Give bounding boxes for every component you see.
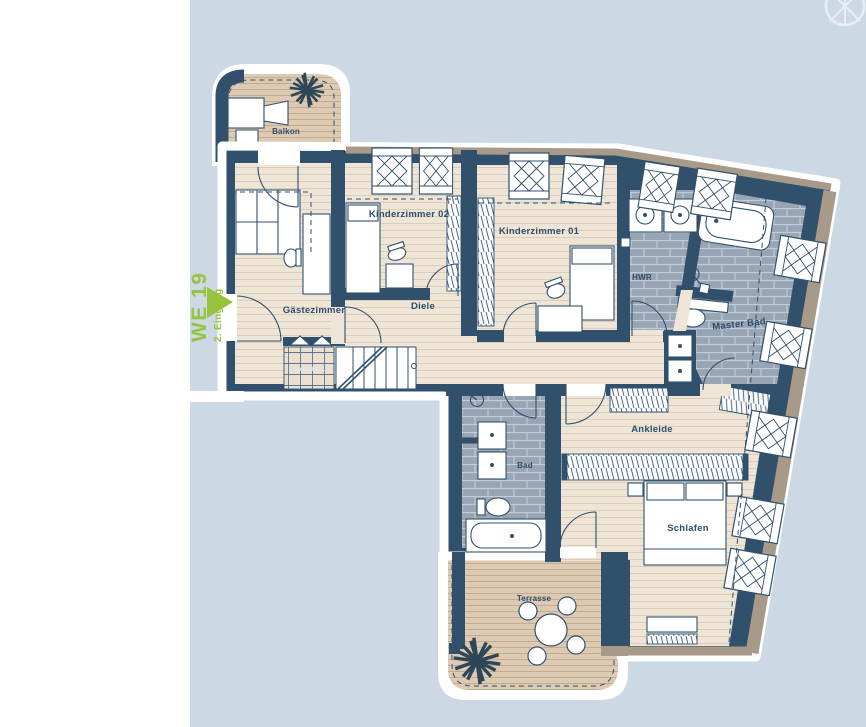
staircase	[336, 347, 417, 389]
window-icon	[372, 148, 412, 194]
room-label-schlafen: Schlafen	[667, 523, 709, 534]
entrance-walkway	[190, 391, 244, 402]
page-left-margin	[0, 0, 190, 727]
window-icon	[638, 162, 680, 213]
terrace-chair	[567, 636, 585, 654]
floor-plan-page: Balkon	[0, 0, 866, 727]
window-icon	[732, 496, 784, 543]
room-label-abstell: Abstell 01	[293, 366, 326, 373]
window-icon	[419, 148, 452, 194]
toilet-bad	[477, 498, 510, 516]
room-label-ankleide: Ankleide	[631, 424, 673, 435]
window-icon	[561, 155, 605, 204]
room-terrasse	[438, 552, 628, 700]
desk-kinderzimmer02	[386, 264, 413, 288]
window-icon	[745, 410, 797, 457]
bathtub-bad	[466, 519, 546, 552]
unit-label: WE 19	[188, 271, 211, 342]
room-label-kinderzimmer02: Kinderzimmer 02	[369, 209, 449, 220]
terrace-table	[535, 614, 567, 646]
room-label-kinderzimmer01: Kinderzimmer 01	[499, 226, 580, 237]
desk-gaestezimmer	[303, 214, 330, 294]
window-icon	[691, 168, 738, 220]
storage-abstell: Abstell 01	[284, 336, 334, 389]
terrace-chair	[558, 597, 576, 615]
hwr-sink	[621, 238, 630, 247]
room-label-balkon: Balkon	[272, 127, 300, 136]
bed-gaestezimmer	[236, 190, 300, 254]
bench-schlafen	[647, 617, 697, 632]
terrace-chair	[528, 647, 546, 665]
terrace-chair	[519, 602, 537, 620]
window-icon	[724, 548, 776, 595]
room-label-gaestezimmer: Gästezimmer	[283, 305, 345, 316]
desk-kinderzimmer01	[538, 306, 582, 332]
room-label-diele: Diele	[411, 301, 435, 312]
floor-plan-drawing: Balkon	[0, 0, 866, 727]
room-label-hwr: HWR	[632, 273, 652, 282]
window-icon	[774, 235, 826, 282]
window-icon	[509, 153, 549, 199]
room-label-bad: Bad	[517, 461, 533, 470]
entrance-label: 2. Eingang	[213, 288, 224, 342]
window-icon	[760, 321, 812, 368]
room-label-terrasse: Terrasse	[517, 594, 552, 603]
